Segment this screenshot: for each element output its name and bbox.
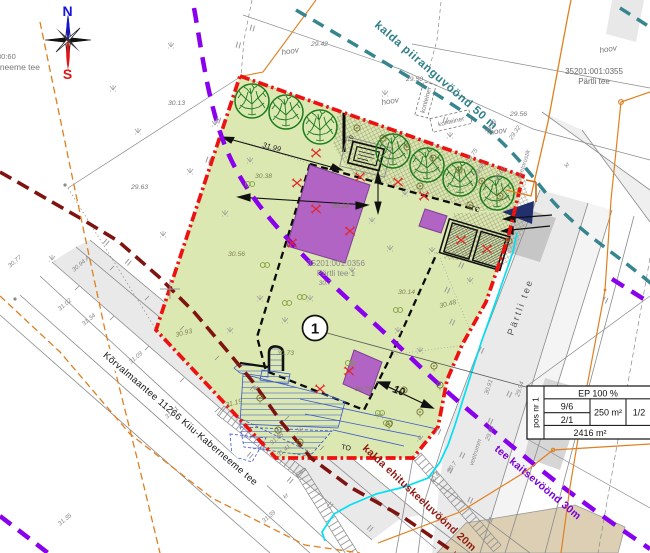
svg-text:29.63: 29.63 [130, 184, 148, 191]
svg-text:30.73: 30.73 [277, 350, 294, 357]
svg-text:250 m²: 250 m² [594, 408, 622, 418]
svg-text:35201:001:0356: 35201:001:0356 [307, 259, 365, 268]
svg-text:29.50: 29.50 [405, 76, 423, 83]
svg-text:30.13: 30.13 [168, 100, 185, 107]
svg-text:30.38: 30.38 [255, 173, 272, 180]
svg-text:rneeme tee: rneeme tee [0, 62, 40, 72]
svg-text:Pärtli tee: Pärtli tee [578, 77, 610, 86]
svg-text:30.78: 30.78 [355, 386, 372, 393]
svg-text:pos nr 1: pos nr 1 [531, 397, 541, 428]
svg-text:30:60: 30:60 [0, 52, 16, 61]
svg-text:2416 m²: 2416 m² [573, 428, 606, 438]
svg-text:1: 1 [311, 321, 319, 338]
svg-text:30.26: 30.26 [332, 203, 349, 210]
svg-text:1/2: 1/2 [633, 408, 646, 418]
svg-text:29.56: 29.56 [509, 111, 527, 118]
svg-text:N: N [62, 3, 72, 19]
svg-text:9/6: 9/6 [561, 402, 574, 412]
svg-text:35201:001:0355: 35201:001:0355 [565, 67, 623, 76]
svg-text:Pärtli tee 1: Pärtli tee 1 [317, 269, 356, 278]
svg-text:30.7: 30.7 [319, 280, 332, 287]
svg-text:30.14: 30.14 [398, 289, 415, 296]
svg-text:2/1: 2/1 [561, 415, 574, 425]
svg-text:S: S [63, 66, 72, 82]
svg-text:30.56: 30.56 [228, 251, 245, 258]
svg-text:29.42: 29.42 [310, 41, 328, 48]
svg-text:EP 100 %: EP 100 % [578, 389, 618, 399]
